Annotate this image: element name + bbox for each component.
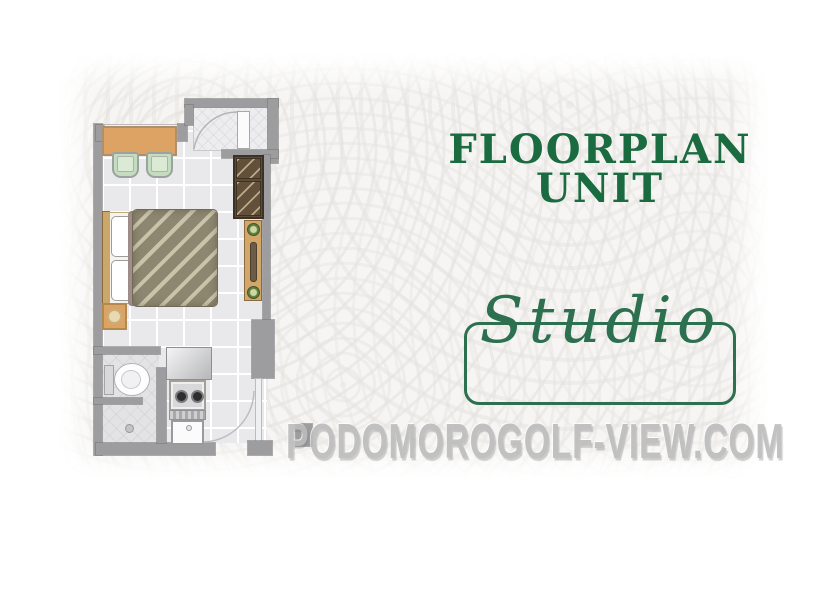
wardrobe-icon — [233, 155, 264, 219]
floorplan-illustration — [94, 99, 319, 461]
console-desk-icon — [244, 220, 262, 301]
wardrobe-shelf — [236, 158, 261, 179]
refrigerator-counter-icon — [166, 347, 212, 380]
plant-icon — [247, 223, 260, 236]
screenshot-root: FLOORPLAN UNIT Studio PODOMOROGOLF-VIEW.… — [0, 0, 828, 607]
lamp-icon — [107, 309, 122, 324]
toilet-bowl-inner — [121, 370, 141, 389]
chair-icon — [112, 152, 139, 178]
double-bed-icon — [133, 210, 217, 306]
toilet-tank — [104, 365, 114, 395]
nightstand-icon — [102, 303, 127, 330]
chair-icon — [146, 152, 173, 178]
title-line-floorplan: FLOORPLAN — [440, 130, 760, 169]
toilet-icon — [114, 363, 150, 396]
title-line-unit: UNIT — [440, 169, 760, 208]
faucet-icon — [186, 425, 192, 431]
shower-drain-icon — [125, 424, 134, 433]
desk-slot — [250, 242, 257, 282]
unit-label: Studio — [452, 284, 748, 358]
kitchen-sink-icon — [171, 420, 204, 445]
burner-icon — [175, 390, 188, 403]
chair-seat — [151, 156, 168, 172]
page-title: FLOORPLAN UNIT — [440, 130, 760, 208]
stove-icon — [169, 380, 206, 411]
burner-icon — [191, 390, 204, 403]
wardrobe-shelf — [236, 181, 261, 216]
kitchen-counter-strip — [169, 410, 206, 420]
chair-seat — [117, 156, 134, 172]
plant-icon — [247, 286, 260, 299]
watermark-text: PODOMOROGOLF-VIEW.COM — [286, 412, 784, 470]
